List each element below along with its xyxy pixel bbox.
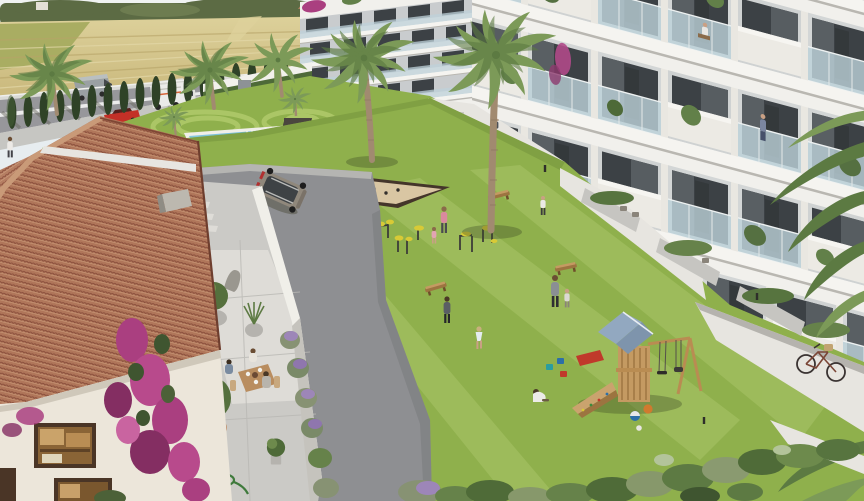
chair [230, 380, 236, 391]
swing-seat [657, 371, 667, 374]
scene-canvas [0, 0, 864, 501]
bike-basket [824, 344, 833, 351]
chair [274, 376, 280, 388]
clubhouse [0, 116, 232, 501]
sidewalk-walker [7, 137, 13, 158]
architectural-render-scene [0, 0, 864, 501]
clubhouse-window-1 [34, 423, 96, 468]
baby-swing-seat [674, 367, 683, 372]
clubhouse-window-3 [0, 468, 16, 501]
